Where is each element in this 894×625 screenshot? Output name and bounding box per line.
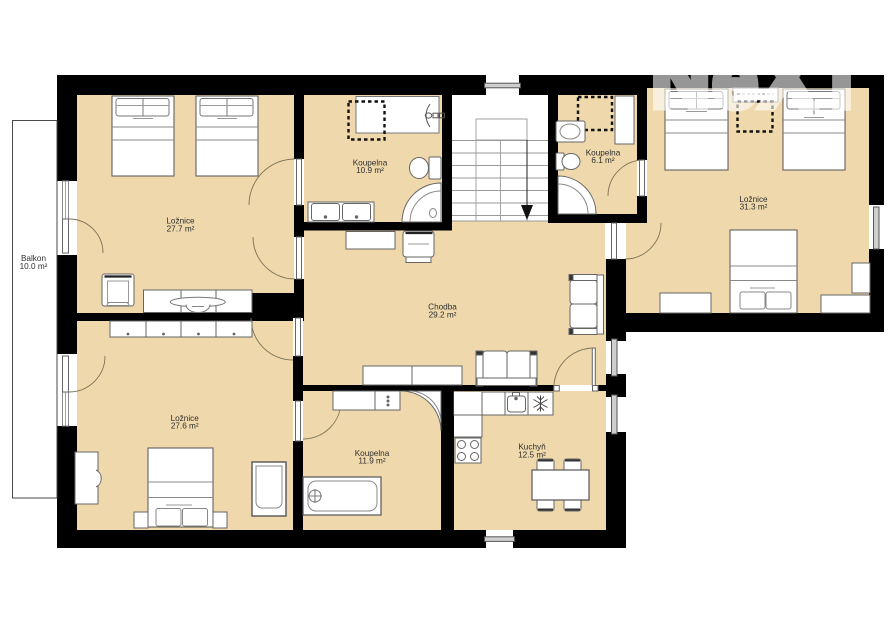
- svg-text:31.3 m²: 31.3 m²: [740, 203, 768, 212]
- svg-text:12.5 m²: 12.5 m²: [518, 451, 546, 460]
- svg-text:11.9 m²: 11.9 m²: [358, 457, 385, 466]
- svg-text:6.1 m²: 6.1 m²: [591, 156, 614, 165]
- svg-text:27.6 m²: 27.6 m²: [171, 422, 199, 431]
- svg-text:10.9 m²: 10.9 m²: [356, 166, 384, 175]
- svg-text:27.7 m²: 27.7 m²: [167, 224, 195, 233]
- svg-text:NeXT: NeXT: [651, 34, 869, 125]
- svg-text:29.2 m²: 29.2 m²: [429, 310, 457, 319]
- svg-text:10.0 m²: 10.0 m²: [20, 262, 48, 271]
